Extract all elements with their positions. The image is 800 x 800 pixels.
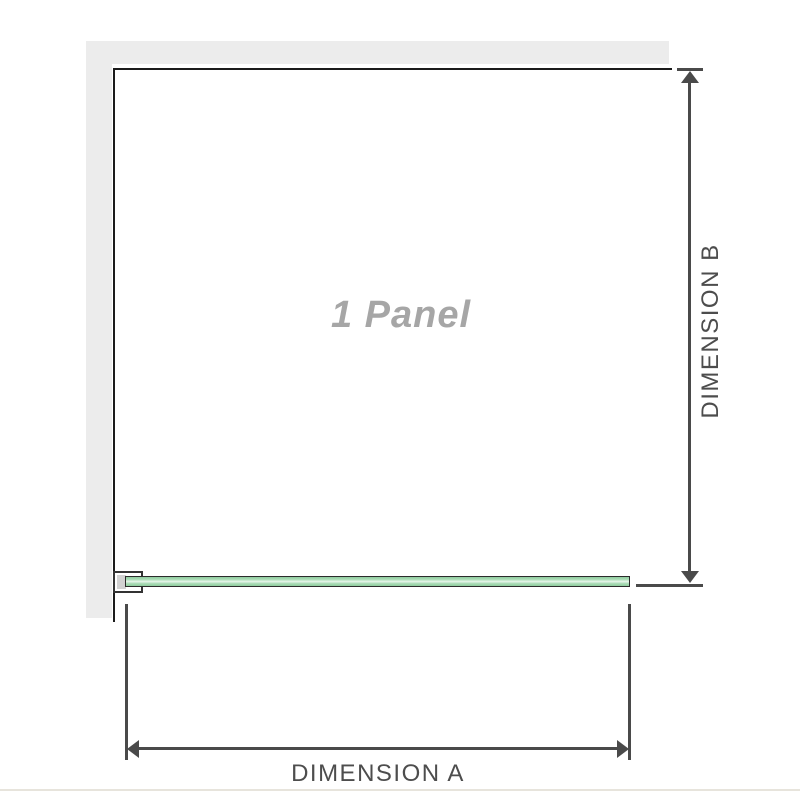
dimension-b-bottom-tick bbox=[636, 584, 703, 587]
dimension-a-label: DIMENSION A bbox=[228, 759, 528, 789]
wall-left bbox=[86, 41, 112, 618]
panel-count-label: 1 Panel bbox=[250, 292, 552, 338]
dimension-a-left-extension bbox=[125, 604, 128, 760]
arrow-down-icon bbox=[681, 571, 699, 583]
enclosure-outline bbox=[113, 68, 672, 622]
dimension-b-label: DIMENSION B bbox=[698, 206, 724, 456]
arrow-right-icon bbox=[617, 740, 629, 758]
glass-panel-bar bbox=[125, 576, 630, 587]
dimension-a-line bbox=[137, 747, 619, 750]
shower-screen-diagram: 1 Panel DIMENSION B DIMENSION A bbox=[0, 0, 800, 800]
dimension-b-line bbox=[688, 80, 691, 573]
dimension-a-right-extension bbox=[628, 604, 631, 760]
wall-top bbox=[86, 41, 669, 64]
footer-divider bbox=[0, 789, 800, 791]
